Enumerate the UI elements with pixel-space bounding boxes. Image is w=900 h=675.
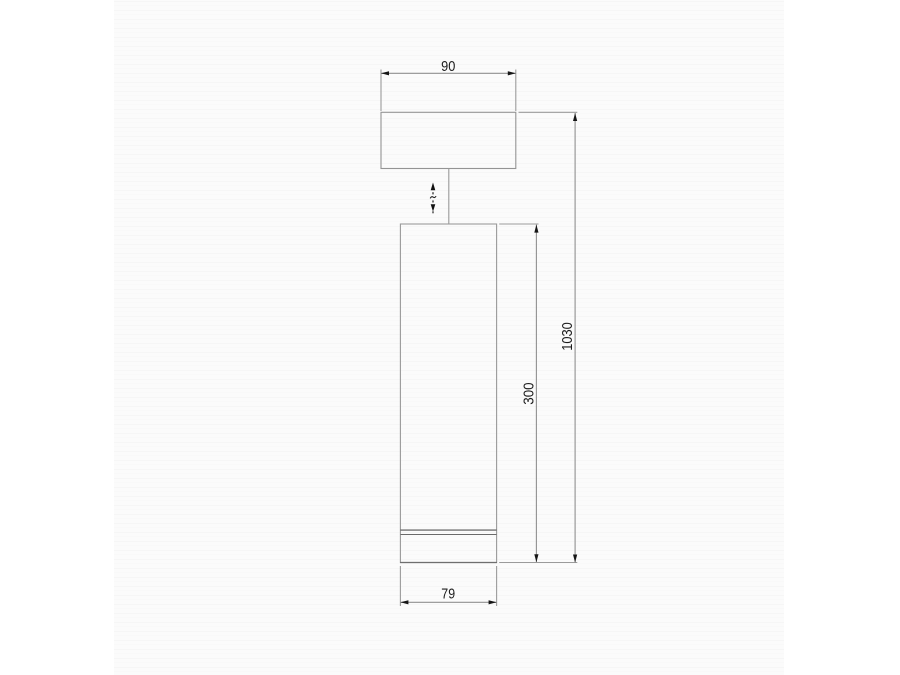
svg-text:90: 90: [441, 58, 455, 75]
svg-text:300: 300: [521, 382, 538, 404]
svg-text:1030: 1030: [559, 322, 576, 351]
svg-text:79: 79: [441, 586, 455, 603]
